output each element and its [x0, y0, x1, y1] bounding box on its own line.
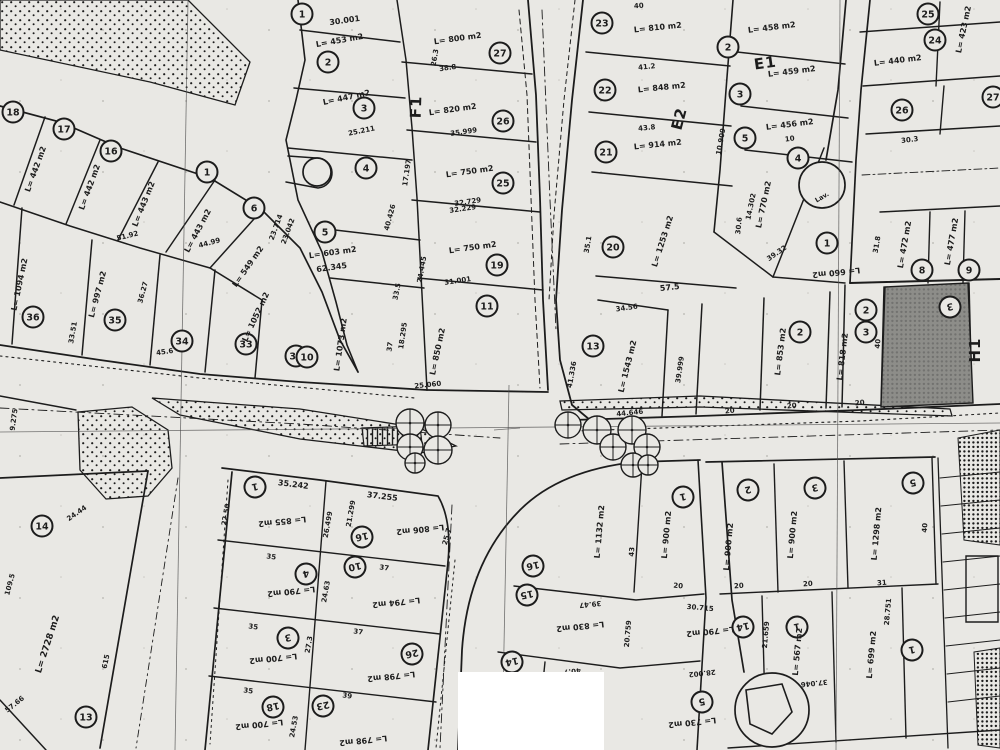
lot-number-circle: 5 [735, 128, 756, 149]
map-text: 40 [921, 523, 930, 534]
map-text: 35 [248, 622, 259, 631]
lot-number-circle: 25 [493, 173, 514, 194]
lot-number-circle: 3 [730, 84, 751, 105]
svg-text:5: 5 [742, 133, 749, 144]
svg-text:2: 2 [325, 57, 332, 68]
lot-number-circle: 27 [983, 87, 1000, 108]
survey-marker [405, 453, 425, 473]
cul-de-sac-bulb [735, 673, 809, 747]
svg-text:22: 22 [598, 85, 611, 96]
lot-number-circle: 17 [54, 119, 75, 140]
svg-text:36: 36 [26, 312, 40, 323]
svg-text:27: 27 [493, 48, 506, 59]
svg-text:18: 18 [6, 107, 20, 118]
block-label: H1 [966, 338, 984, 363]
survey-marker [555, 412, 581, 438]
lot-number-circle: 11 [477, 296, 498, 317]
lot-number-circle: 21 [596, 142, 617, 163]
lot-number-circle: 18 [3, 102, 24, 123]
lot-number-circle: 2 [318, 52, 339, 73]
svg-text:25: 25 [496, 178, 509, 189]
lot-number-circle: 19 [487, 255, 508, 276]
lot-number-circle: 6 [244, 198, 265, 219]
lot-number-circle: 3 [354, 98, 375, 119]
svg-text:6: 6 [251, 203, 258, 214]
map-text: 39 [342, 691, 353, 700]
cadastral-map: 1817161636353433321234510272625191123222… [0, 0, 1000, 750]
svg-text:9: 9 [966, 265, 973, 276]
map-text: 20 [673, 582, 684, 591]
svg-text:8: 8 [919, 265, 926, 276]
svg-text:3: 3 [361, 103, 368, 114]
svg-text:3: 3 [737, 89, 744, 100]
map-text: 20 [734, 582, 744, 591]
svg-text:34: 34 [175, 336, 189, 347]
svg-text:2: 2 [797, 327, 804, 338]
map-text: 20 [787, 402, 798, 411]
map-text: 20 [725, 407, 736, 416]
lot-number-circle: 9 [959, 260, 980, 281]
lot-number-circle: 13 [583, 336, 604, 357]
svg-text:10: 10 [300, 352, 314, 363]
lot-number-circle: 1 [197, 162, 218, 183]
lot-number-circle: 16 [101, 141, 122, 162]
svg-text:27: 27 [986, 92, 999, 103]
map-text: 37 [353, 627, 364, 636]
lot-number-circle: 8 [912, 260, 933, 281]
lot-number-circle: 4 [356, 158, 377, 179]
lot-number-circle: 35 [105, 310, 126, 331]
vegetation-area [958, 430, 1000, 545]
svg-text:16: 16 [104, 146, 118, 157]
lot-number-circle: 3 [856, 322, 877, 343]
lot-number-circle: 36 [23, 307, 44, 328]
svg-text:4: 4 [795, 153, 802, 164]
svg-text:20: 20 [606, 242, 620, 253]
svg-text:24: 24 [928, 35, 942, 46]
lot-number-circle: 24 [925, 30, 946, 51]
svg-text:2: 2 [725, 42, 732, 53]
svg-text:21: 21 [599, 147, 612, 158]
map-text: 20 [803, 580, 813, 589]
svg-text:23: 23 [595, 18, 608, 29]
lot-number-circle: 2 [790, 322, 811, 343]
svg-text:35: 35 [108, 315, 121, 326]
scan-white-patch [458, 672, 604, 750]
lot-number-circle: 13 [76, 707, 97, 728]
lot-number-circle: 34 [172, 331, 193, 352]
svg-text:2: 2 [863, 305, 870, 316]
lot-number-circle: 1 [817, 233, 838, 254]
lot-number-circle: 14 [32, 516, 53, 537]
block-label: E1 [753, 53, 778, 74]
svg-text:14: 14 [35, 521, 49, 532]
svg-text:1: 1 [299, 9, 306, 20]
lot-number-circle: 27 [490, 43, 511, 64]
map-text: 40 [874, 338, 883, 349]
map-text: 40 [634, 2, 645, 11]
svg-text:1: 1 [204, 167, 211, 178]
svg-text:1: 1 [824, 238, 831, 249]
lot-number-circle: 25 [918, 4, 939, 25]
survey-marker [396, 409, 424, 437]
svg-text:3: 3 [863, 327, 870, 338]
svg-text:4: 4 [363, 163, 370, 174]
map-text: 43 [628, 547, 637, 558]
svg-text:13: 13 [586, 341, 599, 352]
survey-marker [424, 436, 452, 464]
lot-number-circle: 2 [856, 300, 877, 321]
svg-text:11: 11 [480, 301, 493, 312]
lot-number-circle: 23 [592, 13, 613, 34]
svg-text:19: 19 [490, 260, 503, 271]
block-label: F1 [407, 95, 426, 118]
lot-number-circle: 26 [493, 111, 514, 132]
lot-number-circle: 10 [297, 347, 318, 368]
survey-marker [425, 412, 451, 438]
cul-de-sac-bulb [303, 158, 331, 186]
lot-number-circle: 5 [315, 222, 336, 243]
svg-text:26: 26 [895, 105, 909, 116]
lot-number-circle: 22 [595, 80, 616, 101]
map-text: 37 [385, 341, 394, 352]
survey-marker [638, 455, 658, 475]
svg-text:26: 26 [496, 116, 510, 127]
lot-number-circle: 26 [892, 100, 913, 121]
lot-number-circle: 4 [788, 148, 809, 169]
lot-number-circle: 2 [718, 37, 739, 58]
map-text: 35 [266, 552, 277, 561]
svg-text:13: 13 [79, 712, 92, 723]
cadastral-map-svg: 1817161636353433321234510272625191123222… [0, 0, 1000, 750]
map-text: 10 [784, 134, 795, 143]
svg-text:17: 17 [57, 124, 70, 135]
map-text: 37 [379, 563, 390, 572]
map-text: 31 [877, 579, 887, 588]
lot-number-circle: 20 [603, 237, 624, 258]
svg-text:5: 5 [322, 227, 329, 238]
map-text: 20 [855, 399, 866, 408]
map-text: 35 [243, 686, 254, 695]
lot-number-circle: 1 [292, 4, 313, 25]
svg-text:25: 25 [921, 9, 934, 20]
